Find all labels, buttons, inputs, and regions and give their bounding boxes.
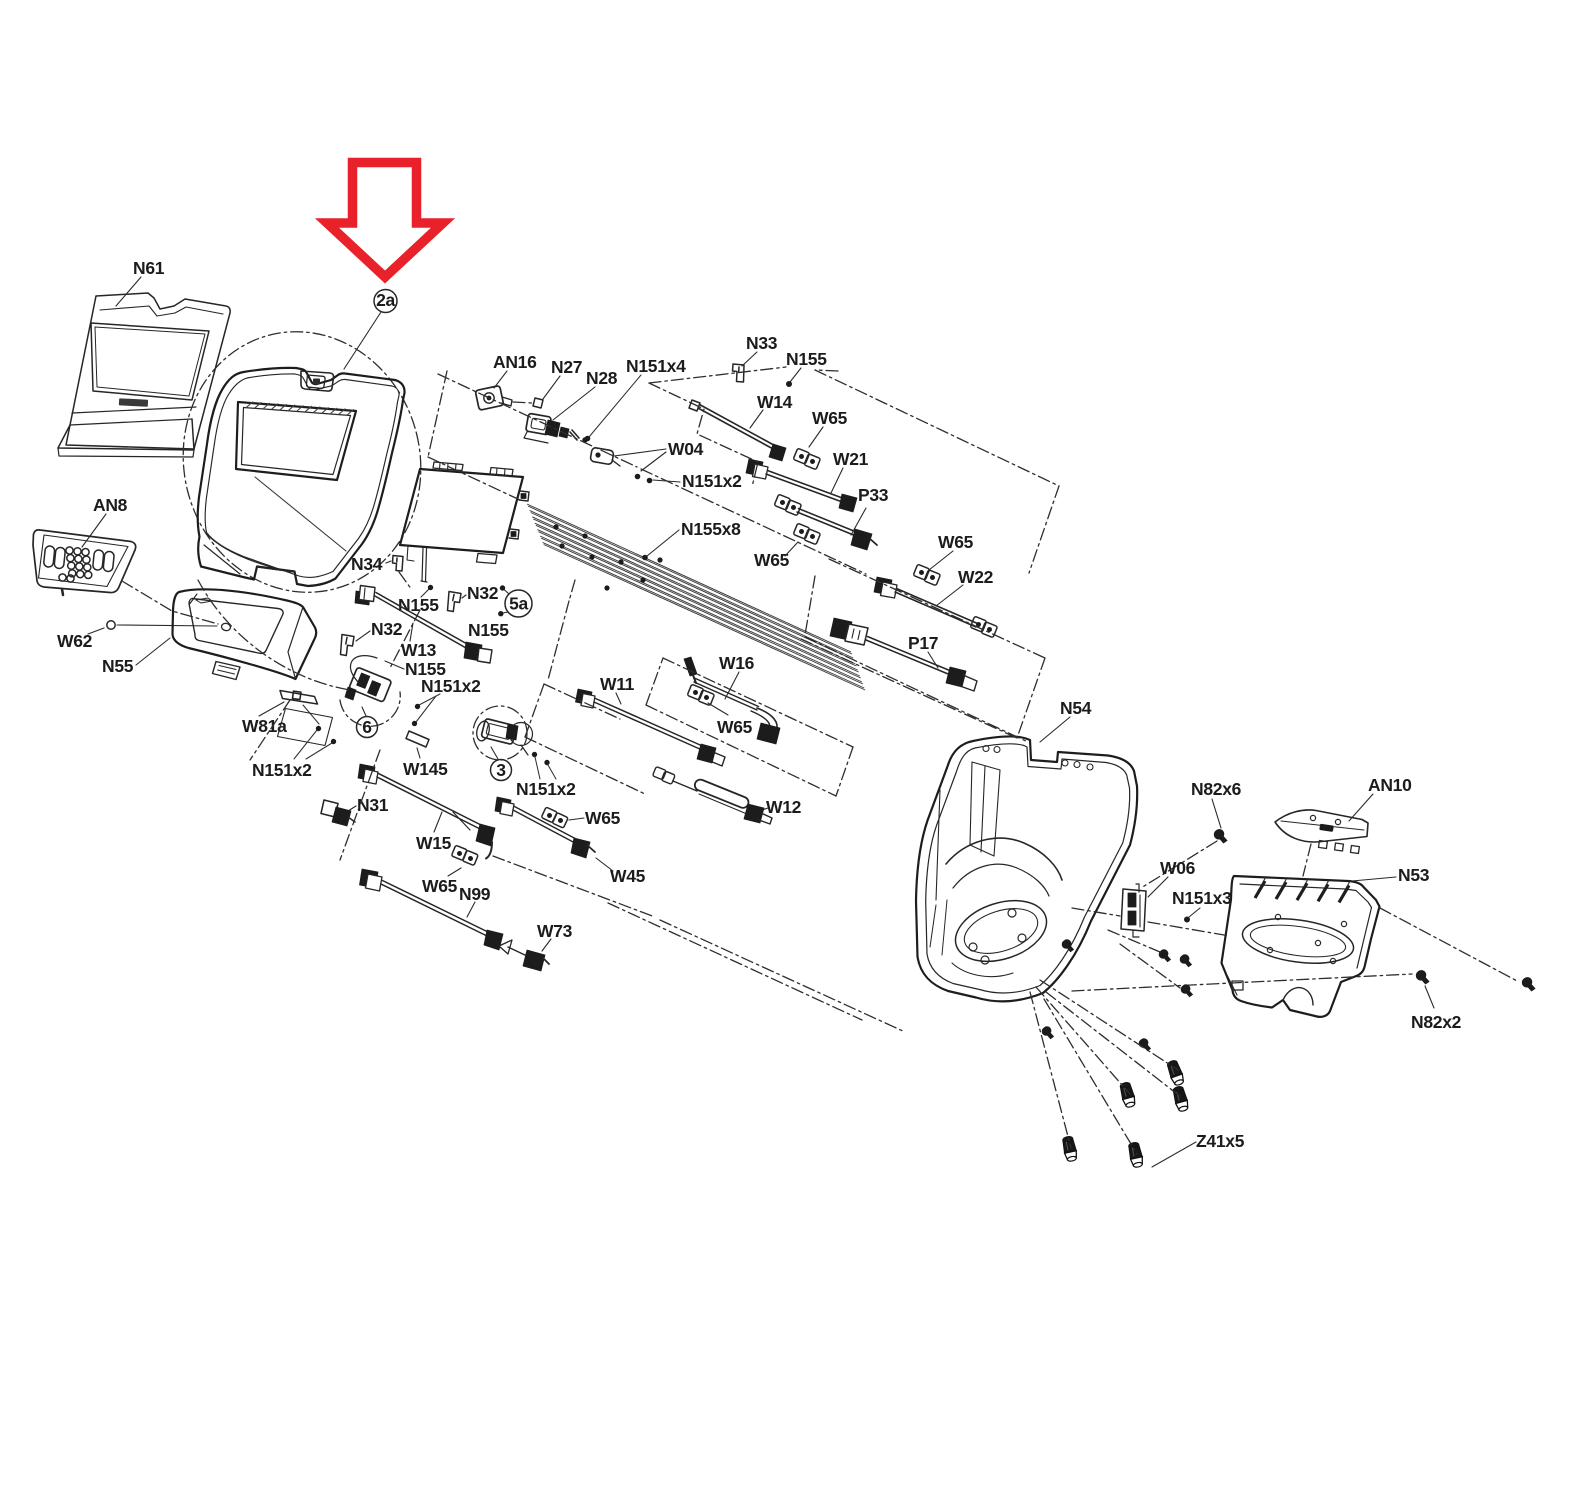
svg-text:N32: N32 (371, 619, 403, 639)
svg-text:N32: N32 (467, 583, 499, 603)
svg-text:W04: W04 (668, 439, 704, 459)
svg-text:W06: W06 (1160, 858, 1196, 878)
svg-text:N27: N27 (551, 357, 582, 377)
svg-text:N82x2: N82x2 (1411, 1012, 1462, 1032)
svg-text:6: 6 (362, 717, 372, 737)
svg-text:W65: W65 (812, 408, 848, 428)
svg-text:W45: W45 (610, 866, 646, 886)
svg-text:W22: W22 (958, 567, 994, 587)
svg-text:AN16: AN16 (493, 352, 537, 372)
svg-text:N151x2: N151x2 (252, 760, 312, 780)
svg-text:3: 3 (496, 760, 506, 780)
svg-text:5a: 5a (509, 594, 528, 614)
svg-text:W65: W65 (938, 532, 974, 552)
svg-text:N151x4: N151x4 (626, 356, 686, 376)
svg-text:AN10: AN10 (1368, 775, 1412, 795)
svg-text:N54: N54 (1060, 698, 1092, 718)
svg-text:2a: 2a (376, 290, 395, 310)
svg-text:W145: W145 (403, 759, 448, 779)
svg-text:W16: W16 (719, 653, 755, 673)
svg-text:AN8: AN8 (93, 495, 128, 515)
svg-text:W13: W13 (401, 640, 437, 660)
svg-text:W65: W65 (585, 808, 621, 828)
svg-text:N151x2: N151x2 (682, 471, 742, 491)
svg-text:W14: W14 (757, 392, 793, 412)
svg-text:P17: P17 (908, 633, 938, 653)
svg-text:N61: N61 (133, 258, 165, 278)
svg-text:N151x2: N151x2 (516, 779, 576, 799)
svg-text:W15: W15 (416, 833, 452, 853)
svg-text:N151x3: N151x3 (1172, 888, 1232, 908)
svg-text:N33: N33 (746, 333, 778, 353)
svg-text:N34: N34 (351, 554, 383, 574)
svg-text:N82x6: N82x6 (1191, 779, 1242, 799)
svg-text:P33: P33 (858, 485, 889, 505)
svg-text:W21: W21 (833, 449, 869, 469)
svg-text:N28: N28 (586, 368, 618, 388)
svg-text:N155: N155 (786, 349, 827, 369)
svg-text:W65: W65 (754, 550, 790, 570)
svg-text:N53: N53 (1398, 865, 1430, 885)
svg-text:N31: N31 (357, 795, 389, 815)
svg-text:N55: N55 (102, 656, 134, 676)
svg-text:N151x2: N151x2 (421, 676, 481, 696)
svg-text:W12: W12 (766, 797, 802, 817)
svg-text:W11: W11 (600, 674, 635, 694)
svg-text:N155: N155 (468, 620, 509, 640)
svg-text:N155x8: N155x8 (681, 519, 741, 539)
svg-text:Z41x5: Z41x5 (1196, 1131, 1245, 1151)
svg-text:W65: W65 (422, 876, 458, 896)
svg-text:W73: W73 (537, 921, 573, 941)
svg-text:W62: W62 (57, 631, 93, 651)
svg-text:W65: W65 (717, 717, 753, 737)
svg-text:N99: N99 (459, 884, 491, 904)
